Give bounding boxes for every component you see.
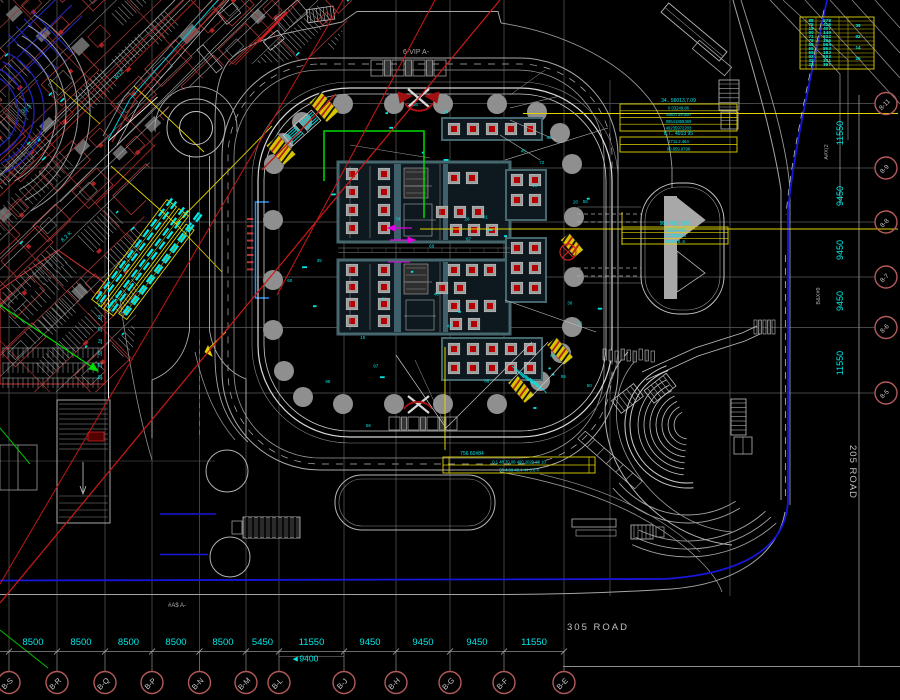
svg-text:39: 39 <box>855 23 861 28</box>
svg-text:35: 35 <box>317 258 323 263</box>
svg-text:6]: 6] <box>98 327 103 333</box>
svg-text:0 03249.66: 0 03249.66 <box>668 105 690 110</box>
svg-text:11550: 11550 <box>299 637 325 648</box>
svg-text:#A$ A-: #A$ A- <box>168 603 186 609</box>
svg-text:56: 56 <box>366 423 372 428</box>
svg-text:8]: 8] <box>98 375 103 381</box>
svg-text:B&X#9: B&X#9 <box>816 287 822 304</box>
svg-text:30: 30 <box>567 301 573 306</box>
svg-text:88: 88 <box>484 379 490 384</box>
svg-text:8502739.000: 8502739.000 <box>666 112 691 117</box>
svg-text:60: 60 <box>287 278 293 283</box>
svg-text:◄9400: ◄9400 <box>291 654 319 664</box>
svg-text:09541858369: 09541858369 <box>666 119 692 124</box>
svg-text:55: 55 <box>583 199 589 204</box>
svg-text:9]: 9] <box>98 351 103 357</box>
svg-text:34.. 56013,7.09: 34.. 56013,7.09 <box>661 98 696 104</box>
svg-text:95: 95 <box>561 374 567 379</box>
svg-text:732000806: 732000806 <box>665 227 687 232</box>
svg-text:3]: 3] <box>98 339 103 345</box>
svg-text:11550: 11550 <box>521 637 547 648</box>
svg-text:26389.8..6: 26389.8..6 <box>665 239 685 244</box>
svg-text:45: 45 <box>521 148 527 153</box>
svg-text:49235972203: 49235972203 <box>666 126 692 131</box>
svg-text:72: 72 <box>539 160 545 165</box>
svg-text:68: 68 <box>429 244 435 249</box>
svg-text:909 4851 939: 909 4851 939 <box>660 221 691 227</box>
svg-text:9450: 9450 <box>835 186 845 206</box>
svg-text:205 ROAD: 205 ROAD <box>847 445 858 499</box>
svg-text:756 60#84: 756 60#84 <box>460 451 484 457</box>
svg-text:8,7.. 4013 95: 8,7.. 4013 95 <box>664 131 693 137</box>
svg-text:9450: 9450 <box>466 637 487 648</box>
svg-text:25: 25 <box>855 56 861 61</box>
svg-text:98: 98 <box>325 379 331 384</box>
svg-text:8500: 8500 <box>118 637 139 648</box>
svg-text:9450: 9450 <box>412 637 433 648</box>
svg-text:81: 81 <box>483 215 489 220</box>
svg-text:11550: 11550 <box>835 121 845 145</box>
svg-text:50: 50 <box>587 383 593 388</box>
svg-text:20: 20 <box>443 110 449 115</box>
svg-text:9450: 9450 <box>835 240 845 260</box>
svg-text:8500: 8500 <box>165 637 186 648</box>
svg-text:20: 20 <box>573 200 579 205</box>
svg-text:3]: 3] <box>98 315 103 321</box>
svg-text:5450: 5450 <box>252 637 273 648</box>
svg-text:92: 92 <box>855 34 861 39</box>
svg-text:A#X(2: A#X(2 <box>824 144 830 159</box>
svg-text:9450: 9450 <box>359 637 380 648</box>
svg-text:14: 14 <box>855 45 861 50</box>
svg-text:21: 21 <box>382 297 388 302</box>
svg-text:15: 15 <box>360 335 366 340</box>
svg-text:305 ROAD: 305 ROAD <box>567 622 629 633</box>
svg-text:8500: 8500 <box>212 637 233 648</box>
svg-text:0 1 48 70.08 460.2020 88 10: 0 1 48 70.08 460.2020 88 10 <box>492 460 546 465</box>
svg-text:23: 23 <box>808 62 814 67</box>
svg-text:23201098.3: 23201098.3 <box>664 233 687 238</box>
svg-text:67: 67 <box>466 237 472 242</box>
svg-text:8500: 8500 <box>22 637 43 648</box>
svg-text:2711.2.464: 2711.2.464 <box>668 139 689 144</box>
svg-text:367: 367 <box>823 62 831 68</box>
svg-text:74: 74 <box>395 217 401 222</box>
svg-text:80: 80 <box>546 135 552 140</box>
svg-text:50 4.68 40.4 44 8.0 4: 50 4.68 40.4 44 8.0 4 <box>499 468 539 473</box>
svg-text:16: 16 <box>532 183 538 188</box>
svg-text:11550: 11550 <box>835 351 845 375</box>
svg-text:9450: 9450 <box>835 291 845 311</box>
svg-text:26: 26 <box>464 216 470 221</box>
svg-text:97: 97 <box>373 364 379 369</box>
svg-text:40: 40 <box>434 291 440 296</box>
svg-text:6]: 6] <box>98 363 103 369</box>
svg-text:00.859.9798: 00.859.9798 <box>667 146 691 151</box>
svg-text:31: 31 <box>577 320 583 325</box>
svg-text:42: 42 <box>447 323 453 328</box>
svg-text:8500: 8500 <box>70 637 91 648</box>
